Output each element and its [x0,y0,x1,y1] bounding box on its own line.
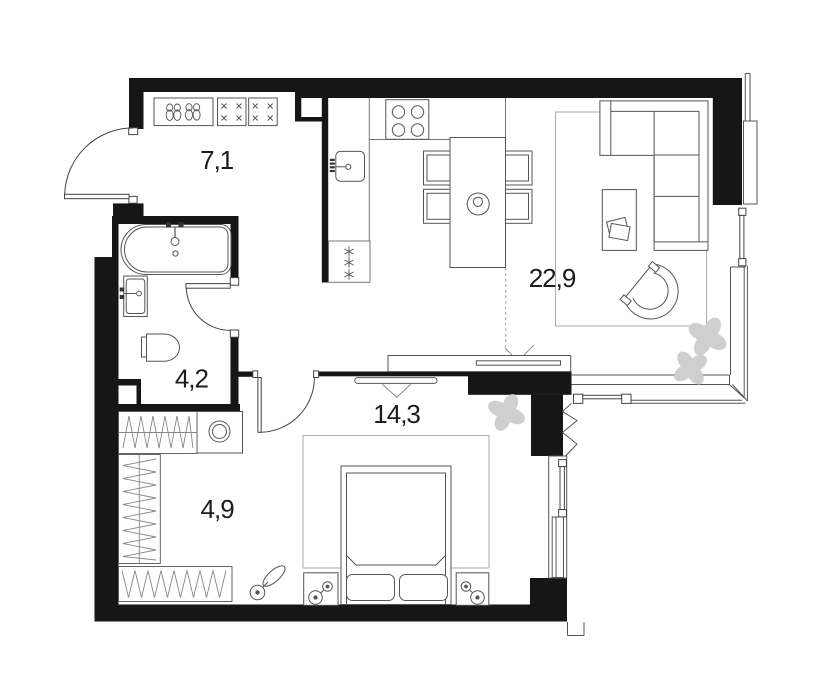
svg-text:4,9: 4,9 [201,494,235,524]
svg-text:4,2: 4,2 [175,364,209,394]
svg-text:14,3: 14,3 [373,399,420,429]
svg-text:22,9: 22,9 [529,263,576,293]
svg-text:7,1: 7,1 [200,145,234,175]
